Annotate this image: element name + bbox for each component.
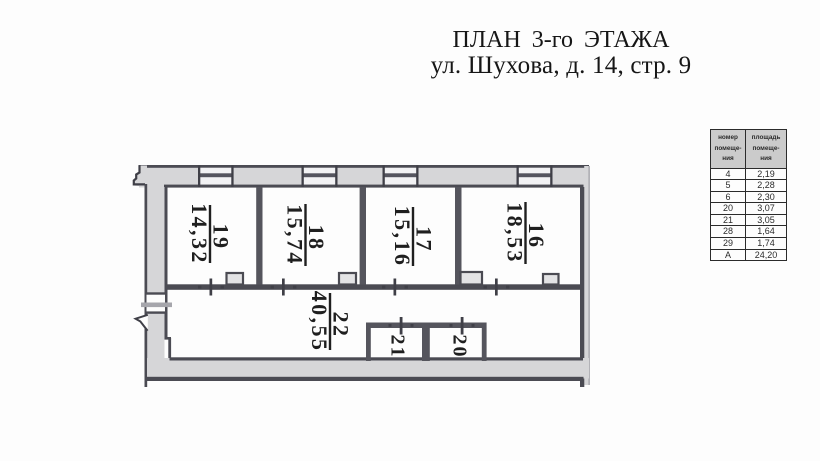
svg-text:40,55: 40,55: [307, 291, 332, 353]
svg-text:15,16: 15,16: [390, 206, 415, 268]
svg-text:14,32: 14,32: [187, 203, 212, 265]
svg-text:21: 21: [387, 335, 409, 359]
svg-text:15,74: 15,74: [283, 204, 308, 266]
svg-text:20: 20: [449, 335, 471, 359]
svg-text:18,53: 18,53: [503, 202, 528, 264]
